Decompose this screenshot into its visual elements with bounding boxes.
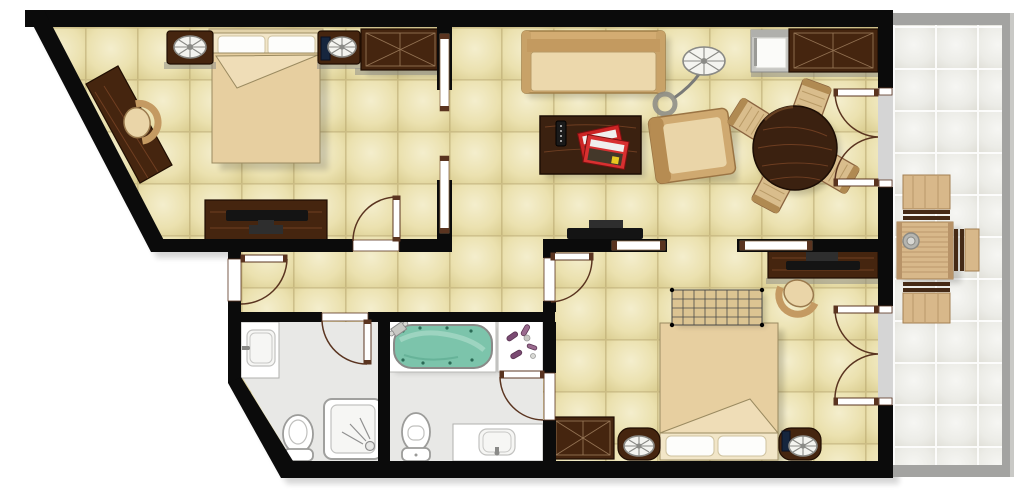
ashtray — [903, 233, 919, 249]
floor-plan-page — [0, 0, 1024, 495]
floor-plan — [0, 0, 1024, 495]
table-lamp-icon — [789, 436, 817, 456]
tv-remote — [556, 121, 566, 146]
outdoor-chair-east — [954, 229, 979, 271]
jacuzzi-bathtub — [387, 319, 496, 372]
armchair — [648, 108, 736, 184]
table-lamp-icon — [624, 436, 654, 456]
bed-bedroom2 — [660, 323, 778, 460]
bed-bedroom1 — [209, 29, 323, 163]
toiletries-shelf — [498, 320, 543, 372]
nightstand-left-bedroom1 — [167, 31, 213, 64]
pillow — [666, 436, 714, 456]
outdoor-table — [897, 222, 953, 279]
nightstand-right-bedroom1 — [318, 31, 360, 64]
table-lamp-icon — [174, 36, 206, 58]
sofa — [522, 31, 665, 93]
wardrobe-bedroom1 — [361, 29, 440, 70]
dresser-bedroom1 — [205, 200, 327, 245]
luggage-rack — [670, 288, 764, 327]
pillow — [718, 436, 766, 456]
outdoor-chair-north — [903, 175, 950, 220]
nightstand-left-bedroom2 — [618, 428, 660, 460]
table-lamp-icon — [328, 37, 356, 57]
pillow — [268, 36, 315, 55]
balcony — [893, 13, 1014, 477]
coffee-table — [540, 116, 641, 174]
nightstand-right-bedroom2 — [779, 428, 821, 460]
toilet-bathroom2 — [402, 413, 430, 461]
shower — [324, 399, 382, 459]
outdoor-chair-south — [903, 282, 950, 323]
desk-bedroom2 — [768, 250, 878, 278]
sideboard-cabinet — [789, 29, 878, 72]
vanity-washbasin-bathroom2 — [453, 424, 543, 461]
wardrobe-bedroom2 — [552, 417, 614, 459]
mini-fridge — [751, 30, 791, 72]
shower-head-icon — [366, 442, 375, 451]
washbasin-bathroom1 — [241, 322, 279, 378]
pillow — [218, 36, 265, 55]
